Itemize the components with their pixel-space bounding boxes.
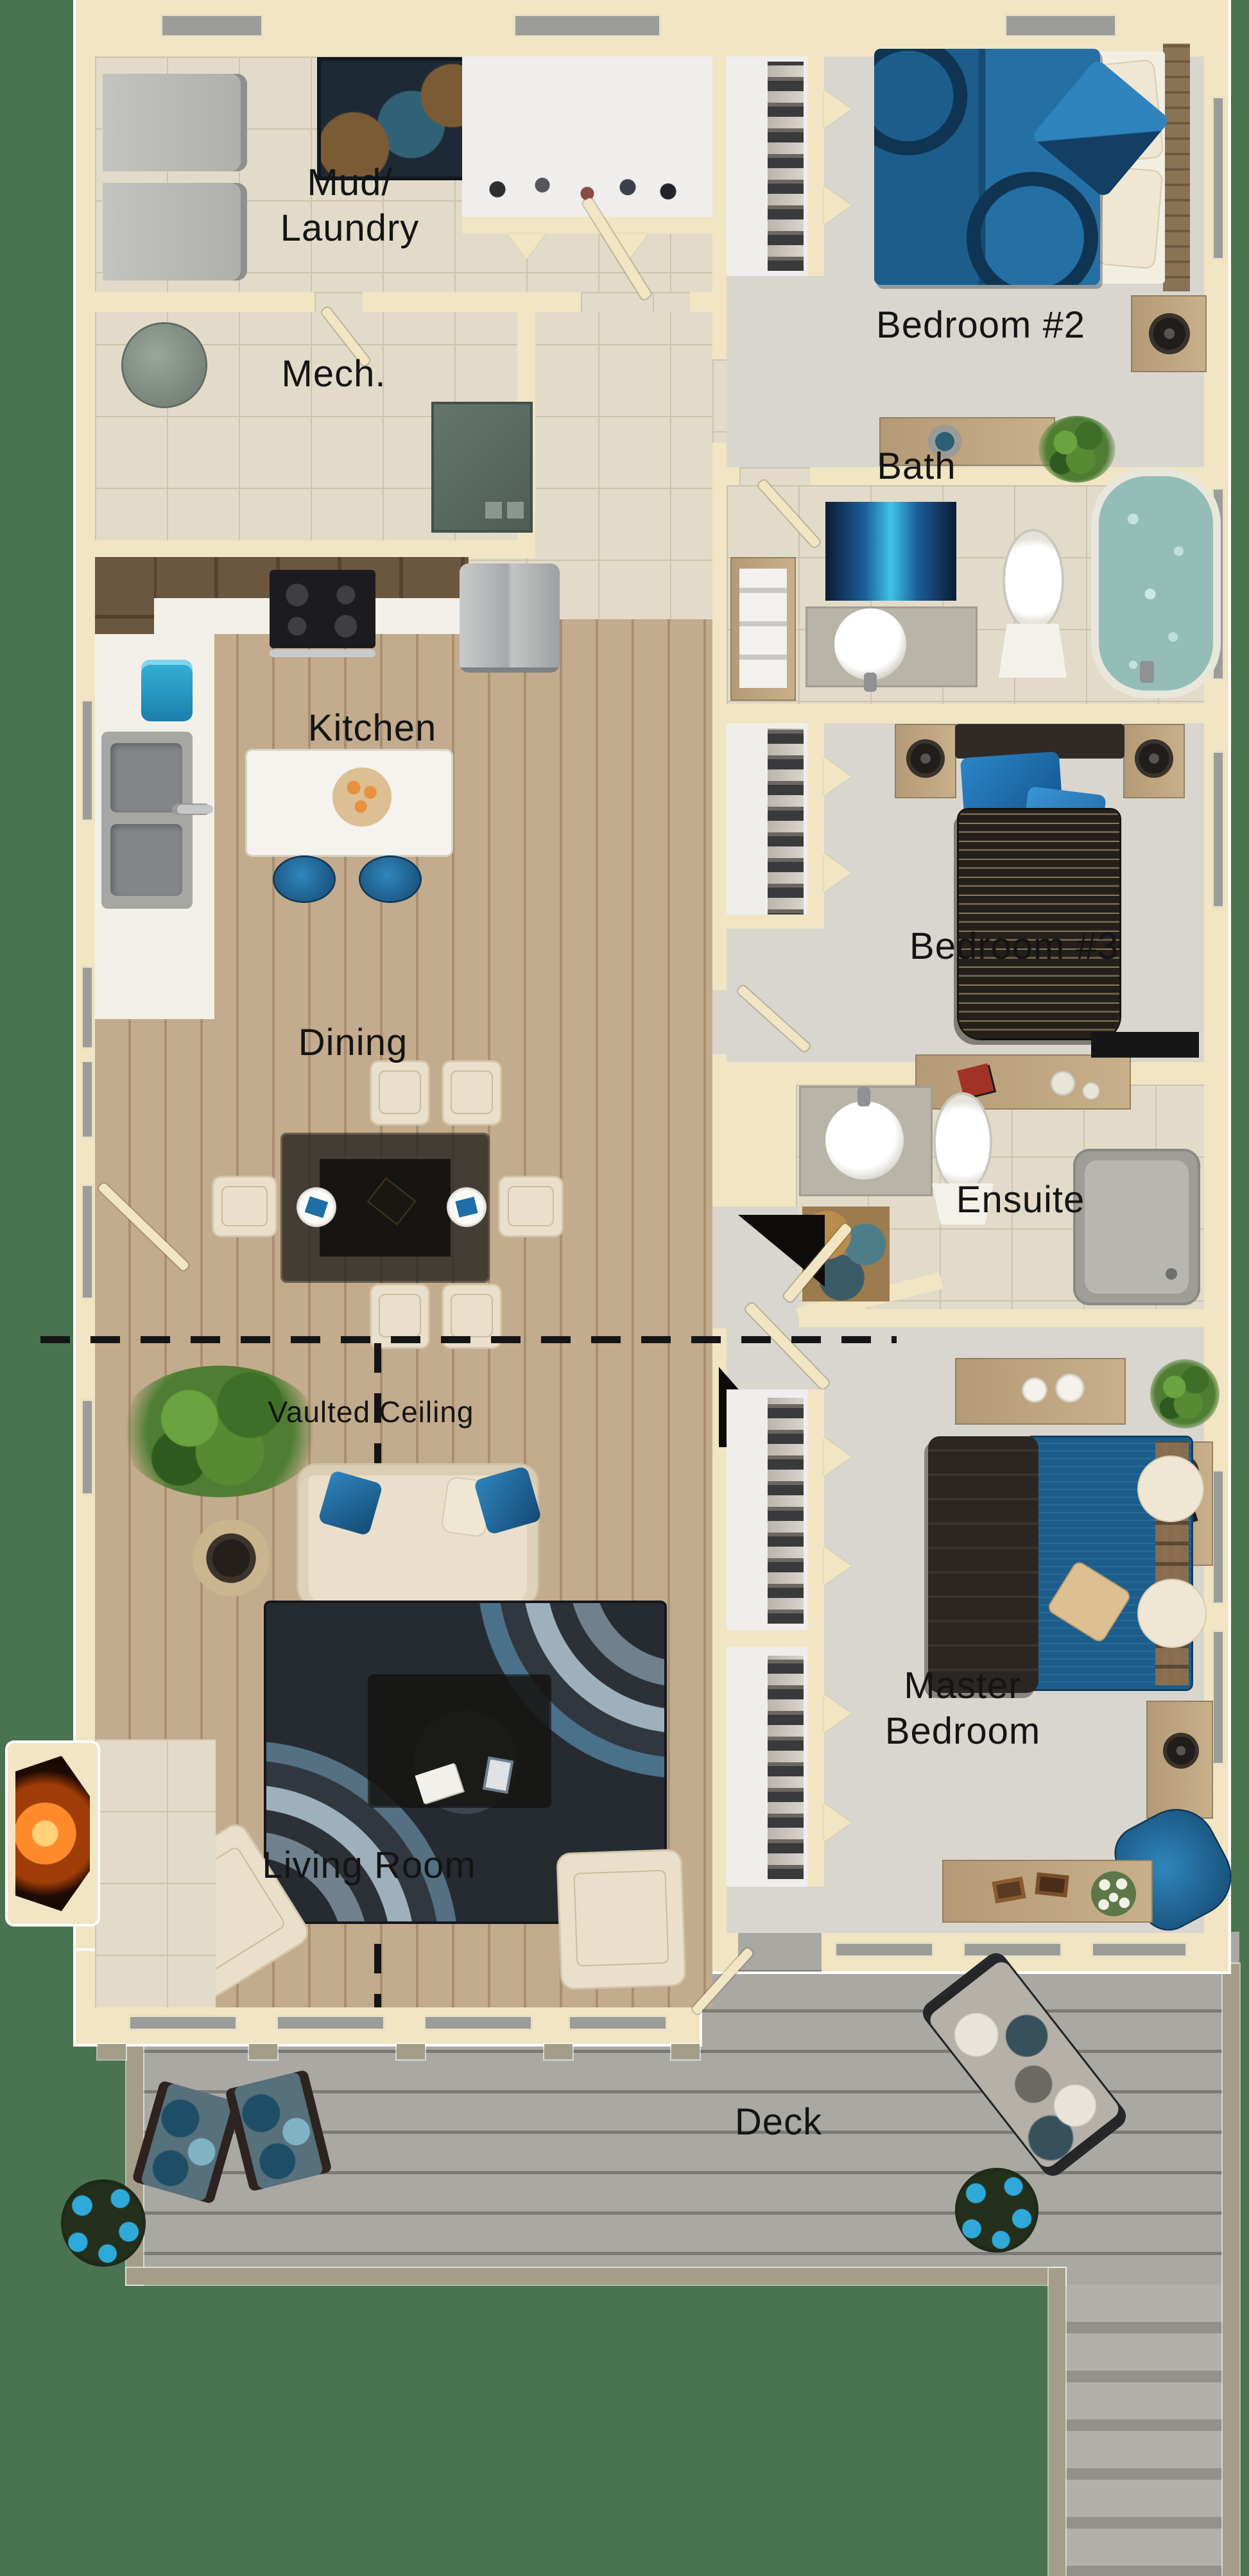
dryer — [103, 183, 247, 280]
bedroom2-hall-door-gap — [712, 359, 727, 443]
window-top-entry-closet — [513, 14, 661, 37]
window-south-living-4 — [568, 2015, 668, 2031]
side-table — [193, 1520, 270, 1597]
furnace-vents — [485, 502, 524, 519]
bath-toilet-bowl — [1005, 531, 1062, 629]
window-top-mud — [160, 14, 263, 37]
label-ensuite: Ensuite — [956, 1178, 1085, 1223]
master-flowers — [1091, 1871, 1136, 1916]
label-mud-line1: Mud/ — [280, 160, 420, 206]
stool-1 — [275, 857, 334, 901]
dining-chair-top-1 — [370, 1060, 430, 1126]
armchair-right — [556, 1849, 686, 1991]
bath-door-gap — [739, 467, 810, 485]
bedroom3-closet-clothes — [768, 728, 804, 923]
bedroom2-closet-door-1 — [824, 90, 851, 128]
recycle-bin — [141, 660, 193, 721]
master-speaker-bottom — [1163, 1733, 1199, 1769]
deck-post-1 — [98, 2044, 126, 2059]
bedroom3-closet-wall — [807, 723, 824, 929]
window-left-kitchen — [81, 700, 94, 821]
bedroom3-closet-door-1 — [824, 757, 851, 796]
label-bath: Bath — [877, 444, 956, 490]
mech-south-wall — [95, 540, 535, 558]
master-dresser-cup-1 — [1022, 1377, 1047, 1403]
bedroom3-desk — [917, 1056, 1130, 1108]
washer — [103, 74, 247, 171]
bathtub-faucet — [1140, 661, 1154, 683]
bedroom3-closet-south-wall — [727, 914, 824, 929]
dining-chair-top-2 — [442, 1060, 502, 1126]
entry-closet-door-chevron-1 — [507, 234, 546, 259]
master-closet-door-3 — [824, 1694, 851, 1733]
mech-door-gap — [314, 292, 363, 312]
entry-closet-wall — [462, 217, 712, 234]
window-left-dining-2 — [81, 1060, 94, 1138]
dining-chair-right — [498, 1176, 564, 1237]
window-south-living-1 — [128, 2015, 237, 2031]
label-deck: Deck — [735, 2100, 822, 2145]
master-closet-door-1 — [824, 1438, 851, 1476]
label-mud-laundry: Mud/ Laundry — [280, 160, 420, 252]
water-tank — [123, 324, 205, 406]
bath-mat — [825, 502, 956, 601]
bedroom3-media-console — [1091, 1032, 1199, 1058]
master-pillow-round-2 — [1137, 1579, 1207, 1648]
vaulted-ceiling-line-horizontal — [40, 1336, 897, 1343]
stove — [270, 570, 375, 648]
master-dresser-cup-2 — [1055, 1373, 1085, 1403]
window-south-master-3 — [1091, 1942, 1187, 1957]
bedroom3-speaker-left — [906, 739, 945, 778]
bedroom2-closet-door-2 — [824, 186, 851, 225]
master-closet-wall — [807, 1389, 824, 1887]
bedroom2-closet-clothes — [768, 62, 804, 271]
bedroom2-speaker — [1149, 313, 1190, 354]
deck-rail-bottom — [126, 2268, 1065, 2285]
master-bed-dark-throw — [928, 1436, 1038, 1693]
bath-sink — [834, 608, 906, 680]
master-closet-door-2 — [824, 1547, 851, 1585]
stair-rail-left — [1049, 2268, 1065, 2576]
fireplace-hearth-tile — [95, 1739, 216, 2007]
deck-stairs — [1065, 2285, 1223, 2576]
patio-door-left-glass — [81, 1184, 94, 1300]
label-mud-line2: Laundry — [280, 206, 420, 252]
bedroom3-closet-door-2 — [824, 854, 851, 892]
label-living-room: Living Room — [262, 1843, 476, 1889]
label-kitchen: Kitchen — [308, 706, 436, 751]
label-bedroom3: Bedroom #3 — [909, 924, 1119, 970]
bedroom3-speaker-right — [1135, 739, 1173, 778]
bath-sink-faucet — [864, 673, 877, 692]
bath-toilet-tank — [999, 624, 1067, 678]
floor-plan-scene: Mud/ Laundry Mech. Bedroom #2 Bath Kitch… — [0, 0, 1249, 2576]
ensuite-shower-drain — [1166, 1268, 1177, 1280]
window-south-master-2 — [963, 1942, 1062, 1957]
deck-post-5 — [671, 2044, 700, 2059]
stool-2 — [361, 857, 420, 901]
ensuite-south-wall — [924, 1309, 1204, 1327]
master-plant — [1150, 1359, 1219, 1429]
deck-post-3 — [397, 2044, 425, 2059]
bedroom2-headboard — [1163, 44, 1190, 291]
ensuite-sink-faucet — [857, 1087, 870, 1106]
bedroom3-door-gap — [712, 990, 727, 1054]
label-vaulted-ceiling: Vaulted Ceiling — [268, 1394, 474, 1430]
window-top-bedroom2 — [1004, 14, 1117, 37]
bedroom2-closet-wall — [807, 56, 824, 276]
stove-handle — [270, 649, 375, 657]
label-master-line1: Master — [885, 1663, 1040, 1709]
entry-door-gap — [581, 292, 690, 312]
dining-chair-left — [212, 1176, 277, 1237]
master-pillow-round-1 — [1137, 1455, 1204, 1522]
bedroom2-plant — [1038, 416, 1115, 483]
sink-basin-1 — [110, 743, 182, 812]
window-south-living-3 — [424, 2015, 533, 2031]
label-dining: Dining — [298, 1020, 408, 1066]
window-right-bedroom3 — [1212, 751, 1225, 908]
sink-basin-2 — [110, 824, 182, 896]
label-master-bedroom: Master Bedroom — [885, 1663, 1040, 1755]
window-south-living-2 — [276, 2015, 385, 2031]
window-right-master-2 — [1212, 1630, 1225, 1765]
living-plant — [119, 1366, 321, 1497]
master-closet-clothes-1 — [768, 1398, 804, 1624]
window-south-master-1 — [834, 1942, 934, 1957]
deck-rail-right — [1223, 1964, 1239, 2576]
window-right-master-1 — [1212, 1470, 1225, 1604]
sink-faucet — [177, 805, 213, 814]
label-mech: Mech. — [282, 352, 386, 397]
master-closet-door-4 — [824, 1803, 851, 1842]
ensuite-sink — [825, 1101, 904, 1180]
ensuite-toilet-bowl — [936, 1095, 990, 1190]
master-closet-clothes-2 — [768, 1656, 804, 1879]
pastry-bowl — [332, 768, 392, 827]
deck-planter-left — [61, 2179, 146, 2267]
mud-rug — [321, 61, 485, 176]
label-bedroom2: Bedroom #2 — [876, 303, 1085, 348]
window-left-dining-1 — [81, 966, 94, 1049]
bath-bedroom3-wall — [727, 704, 1204, 723]
bathtub — [1091, 468, 1221, 698]
window-left-living — [81, 1399, 94, 1495]
deck-post-2 — [249, 2044, 277, 2059]
bedroom3-desk-plate-1 — [1050, 1070, 1076, 1096]
master-photo-frame-2 — [1035, 1872, 1069, 1897]
label-master-line2: Bedroom — [885, 1709, 1040, 1755]
fridge — [460, 563, 560, 673]
bath-towels — [739, 569, 787, 688]
deck-post-4 — [544, 2044, 573, 2059]
bedroom3-desk-plate-2 — [1082, 1082, 1100, 1100]
window-right-bedroom2 — [1212, 96, 1225, 260]
deck-planter-right — [955, 2168, 1038, 2253]
